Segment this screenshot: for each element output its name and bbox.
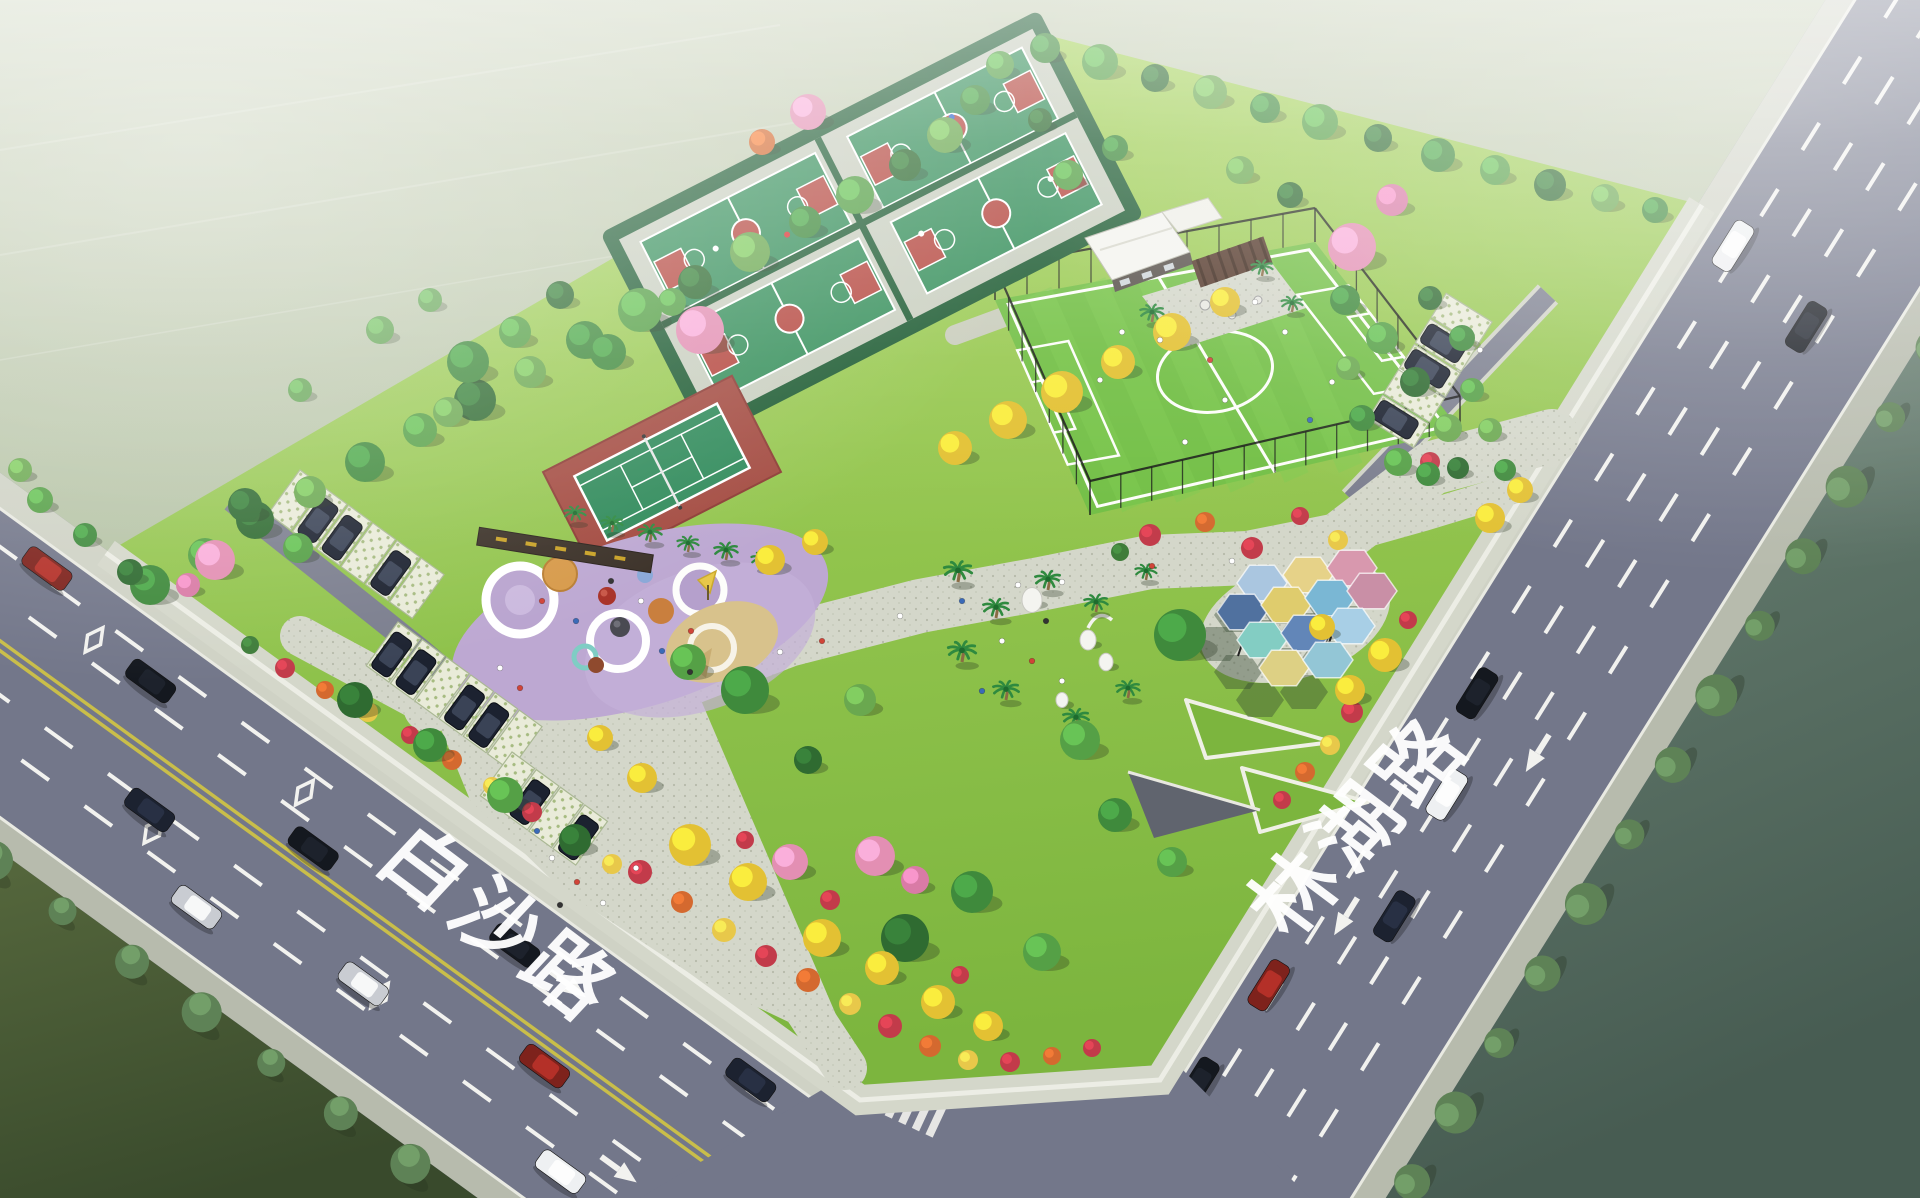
scene-svg: 白沙路 林湖路: [0, 0, 1920, 1198]
aerial-park-rendering: 白沙路 林湖路: [0, 0, 1920, 1198]
mist-overlay: [0, 0, 1920, 1198]
